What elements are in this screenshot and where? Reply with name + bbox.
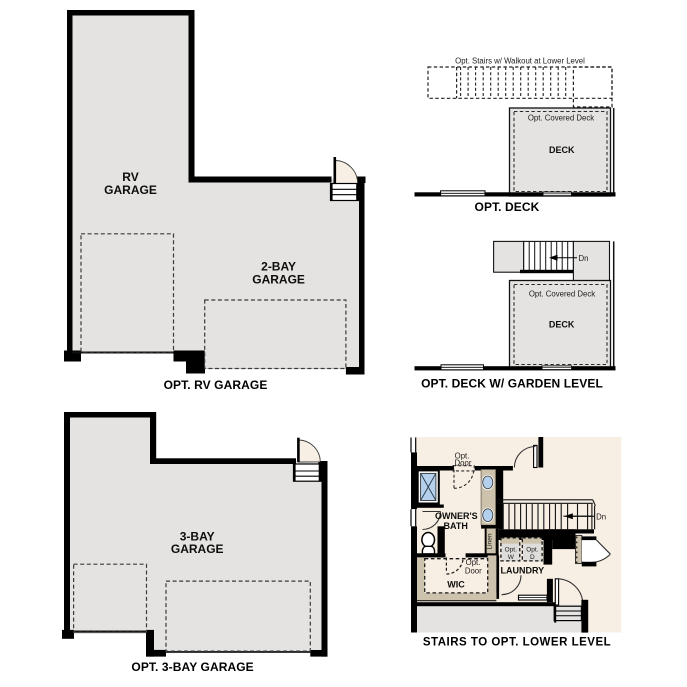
- svg-text:DECK: DECK: [549, 320, 575, 330]
- svg-text:Opt. Covered Deck: Opt. Covered Deck: [529, 290, 595, 299]
- svg-text:DECK: DECK: [549, 145, 575, 155]
- svg-text:Opt.: Opt.: [505, 547, 517, 554]
- svg-text:OPT. DECK W/ GARDEN LEVEL: OPT. DECK W/ GARDEN LEVEL: [421, 377, 603, 391]
- svg-text:D: D: [530, 554, 535, 561]
- svg-text:Opt.: Opt.: [526, 547, 538, 554]
- svg-text:OWNER'S: OWNER'S: [435, 511, 478, 521]
- svg-text:Dn: Dn: [579, 254, 589, 263]
- svg-text:GARAGE: GARAGE: [104, 183, 157, 197]
- svg-text:OPT. DECK: OPT. DECK: [475, 200, 540, 214]
- svg-text:Door: Door: [455, 459, 472, 468]
- svg-text:STAIRS TO OPT. LOWER LEVEL: STAIRS TO OPT. LOWER LEVEL: [423, 636, 611, 648]
- svg-text:GARAGE: GARAGE: [252, 272, 305, 286]
- svg-text:Linen: Linen: [487, 533, 494, 549]
- svg-text:Opt. Stairs w/ Walkout at Lowe: Opt. Stairs w/ Walkout at Lower Level: [455, 57, 585, 66]
- svg-text:W: W: [508, 554, 515, 561]
- svg-text:2-BAY: 2-BAY: [261, 259, 296, 273]
- svg-text:BATH: BATH: [444, 521, 468, 531]
- svg-text:GARAGE: GARAGE: [171, 542, 224, 556]
- svg-text:Door: Door: [465, 567, 482, 576]
- svg-text:Dn: Dn: [596, 512, 606, 521]
- svg-text:OPT. 3-BAY GARAGE: OPT. 3-BAY GARAGE: [131, 660, 253, 674]
- svg-text:RV: RV: [122, 170, 138, 184]
- svg-text:Opt. Covered Deck: Opt. Covered Deck: [528, 114, 594, 123]
- svg-text:LAUNDRY: LAUNDRY: [500, 566, 544, 576]
- svg-text:OPT. RV GARAGE: OPT. RV GARAGE: [164, 378, 268, 392]
- svg-text:WIC: WIC: [447, 579, 465, 589]
